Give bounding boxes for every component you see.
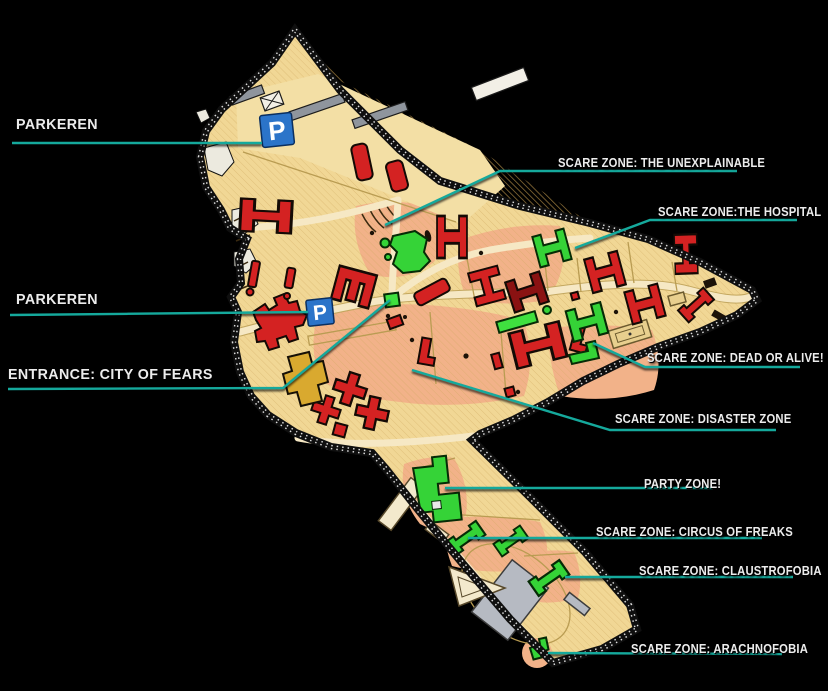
label-scare-hospital: SCARE ZONE:THE HOSPITAL (658, 205, 821, 219)
parking-icon: P (306, 298, 335, 327)
label-parkeren-top: PARKEREN (16, 116, 98, 133)
label-entrance: ENTRANCE: CITY OF FEARS (8, 366, 213, 383)
city-of-fears-map-poster: P P PARKEREN SCARE ZONE: THE UNEXPLAINAB… (0, 0, 828, 691)
label-scare-disaster: SCARE ZONE: DISASTER ZONE (615, 412, 791, 426)
parking-icon: P (259, 112, 294, 147)
label-party-zone: PARTY ZONE! (644, 477, 721, 491)
label-parkeren-mid: PARKEREN (16, 291, 98, 308)
svg-text:P: P (312, 301, 328, 325)
svg-text:P: P (267, 115, 287, 147)
label-scare-circus: SCARE ZONE: CIRCUS OF FREAKS (596, 525, 793, 539)
entrance-gate-marker (384, 293, 400, 308)
park-map-svg: P P (0, 0, 828, 691)
label-scare-unexplainable: SCARE ZONE: THE UNEXPLAINABLE (558, 156, 765, 170)
unexplainable-building (390, 231, 430, 273)
label-scare-claustrofobia: SCARE ZONE: CLAUSTROFOBIA (639, 564, 822, 578)
label-scare-dead-or-alive: SCARE ZONE: DEAD OR ALIVE! (647, 351, 824, 365)
label-scare-arachnofobia: SCARE ZONE: ARACHNOFOBIA (631, 642, 808, 656)
